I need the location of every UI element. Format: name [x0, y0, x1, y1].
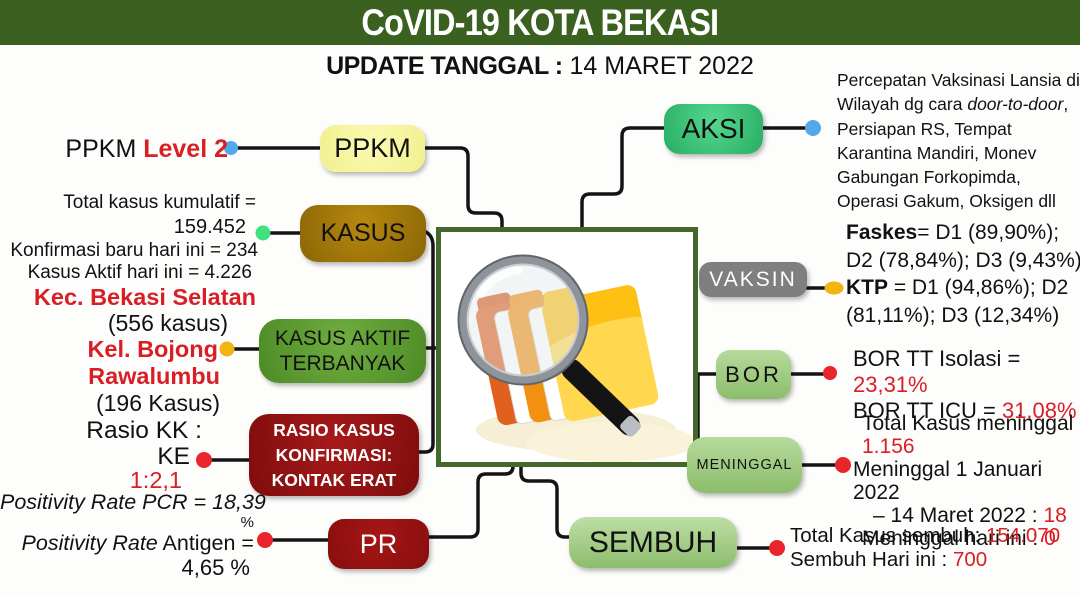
- sembuh-today-value: 700: [953, 548, 987, 571]
- ktp-line: KTP = D1 (94,86%); D2 (81,11%); D3 (12,3…: [846, 274, 1080, 329]
- aksi-description: Percepatan Vaksinasi Lansia di Wilayah d…: [837, 68, 1080, 214]
- kasus-total-value: 159.452: [0, 215, 258, 240]
- wire-ppkm-to-image: [425, 148, 502, 232]
- ppkm-level-text: PPKM Level 2: [0, 134, 228, 164]
- wire-aksi-to-image: [582, 128, 663, 232]
- aksi-italic: door-to-door: [967, 94, 1063, 114]
- meninggal-total-value: 1.156: [853, 435, 1080, 458]
- kelurahan-name-2: Rawalumbu: [0, 363, 258, 390]
- node-kasus: KASUS: [300, 205, 426, 262]
- meninggal-range-line-1: Meninggal 1 Januari 2022: [853, 458, 1080, 504]
- dot-red-meninggal: [835, 457, 851, 473]
- sembuh-total-line: Total Kasus sembuh: 154.070: [790, 524, 1080, 548]
- antigen-rest-part: Antigen =: [158, 531, 254, 555]
- pcr-percent-sign: %: [0, 514, 258, 531]
- wire-image-to-pr: [429, 461, 513, 537]
- meninggal-total-label: Total Kasus meninggal: [853, 412, 1080, 435]
- antigen-value: 4,65 %: [0, 555, 258, 581]
- sembuh-total-label: Total Kasus sembuh:: [790, 524, 986, 547]
- dot-red-pr: [257, 532, 273, 548]
- bor-isolasi-label: BOR TT Isolasi =: [853, 346, 1080, 372]
- kecamatan-name: Kec. Bekasi Selatan: [0, 284, 258, 310]
- dot-red-bor: [823, 366, 837, 380]
- ktp-label: KTP: [846, 276, 888, 299]
- kelurahan-count: (196 Kasus): [0, 390, 258, 417]
- ppkm-prefix: PPKM: [65, 135, 143, 163]
- node-meninggal: MENINGGAL: [687, 437, 802, 493]
- node-vaksin: VAKSIN: [699, 262, 807, 297]
- folders-magnifier-image: [436, 227, 698, 467]
- node-rasio-kasus-konfirmasi: RASIO KASUS KONFIRMASI: KONTAK ERAT: [249, 414, 419, 496]
- rasio-label-2: KE: [0, 445, 258, 469]
- shadow-shape-2: [526, 422, 693, 462]
- kelurahan-name-1: Kel. Bojong: [0, 336, 258, 363]
- node-sembuh: SEMBUH: [569, 517, 737, 568]
- ppkm-level-value: Level 2: [143, 135, 228, 163]
- node-aksi: AKSI: [664, 104, 763, 154]
- folders-clipart: [441, 232, 693, 462]
- antigen-italic-part: Positivity Rate: [22, 531, 158, 555]
- wire-image-to-sembuh: [521, 461, 569, 537]
- kasus-total-label: Total kasus kumulatif =: [0, 190, 258, 215]
- bor-isolasi-value: 23,31%: [853, 372, 1080, 398]
- vaksin-stats: Faskes= D1 (89,90%); D2 (78,84%); D3 (9,…: [846, 219, 1080, 329]
- dot-red-sembuh: [769, 540, 785, 556]
- rasio-value: 1:2,1: [0, 469, 258, 491]
- positivity-rate-antigen: Positivity Rate Antigen =: [0, 531, 258, 555]
- infographic-canvas: CoVID-19 KOTA BEKASI UPDATE TANGGAL : 14…: [0, 0, 1080, 597]
- faskes-line: Faskes= D1 (89,90%); D2 (78,84%); D3 (9,…: [846, 219, 1080, 274]
- dot-blue-aksi: [805, 120, 821, 136]
- kecamatan-count: (556 kasus): [0, 310, 258, 336]
- positivity-rate-pcr: Positivity Rate PCR = 18,39: [0, 491, 258, 514]
- node-pr: PR: [328, 519, 429, 569]
- faskes-label: Faskes: [846, 221, 917, 244]
- node-bor: BOR: [716, 350, 791, 399]
- dot-yellow-vaksin: [825, 282, 844, 295]
- kasus-new-line: Konfirmasi baru hari ini = 234: [0, 240, 258, 262]
- sembuh-today-label: Sembuh Hari ini :: [790, 548, 953, 571]
- kasus-active-line: Kasus Aktif hari ini = 4.226: [0, 262, 258, 284]
- left-stats-column: Total kasus kumulatif = 159.452 Konfirma…: [0, 190, 258, 581]
- rasio-label-1: Rasio KK :: [0, 417, 258, 445]
- node-ppkm: PPKM: [320, 125, 425, 172]
- sembuh-stats: Total Kasus sembuh: 154.070 Sembuh Hari …: [790, 524, 1080, 572]
- sembuh-today-line: Sembuh Hari ini : 700: [790, 548, 1080, 572]
- node-kasus-aktif-terbanyak: KASUS AKTIF TERBANYAK: [259, 319, 426, 383]
- sembuh-total-value: 154.070: [986, 524, 1060, 547]
